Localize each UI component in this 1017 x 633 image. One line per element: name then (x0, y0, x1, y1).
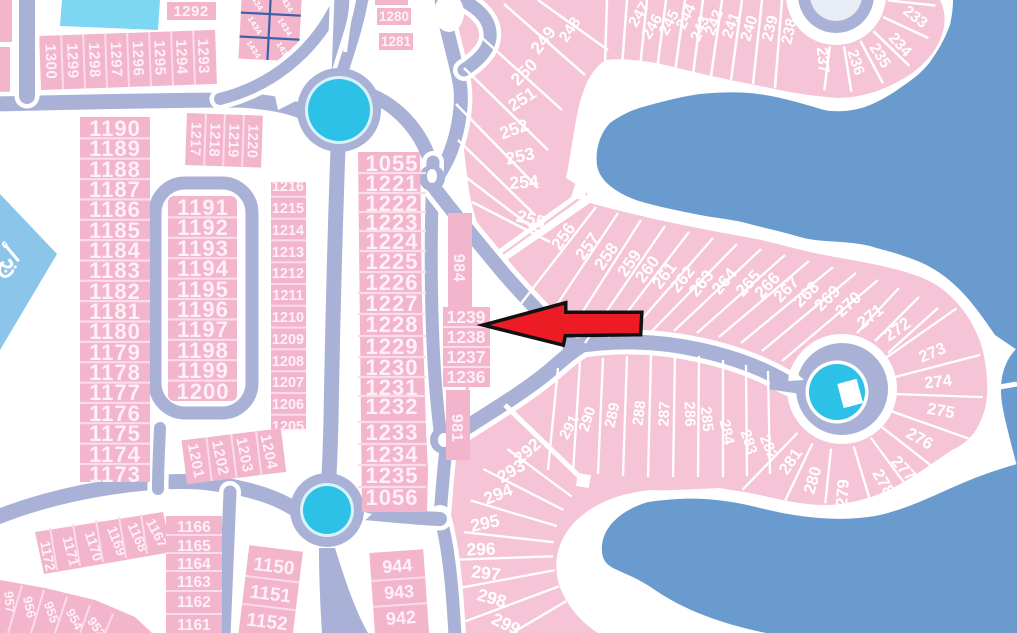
svg-text:254: 254 (509, 171, 540, 193)
svg-text:1219: 1219 (224, 123, 241, 158)
svg-text:984: 984 (450, 254, 467, 282)
svg-text:1206: 1206 (272, 397, 304, 413)
svg-text:1166: 1166 (177, 519, 211, 536)
svg-text:1210: 1210 (272, 310, 304, 326)
svg-text:1296: 1296 (129, 41, 147, 77)
svg-text:981: 981 (448, 414, 465, 442)
svg-text:1281: 1281 (381, 34, 412, 49)
svg-text:1217: 1217 (186, 122, 203, 157)
svg-text:1295: 1295 (150, 40, 168, 76)
svg-text:288: 288 (630, 400, 650, 427)
svg-text:1163: 1163 (177, 574, 211, 591)
svg-text:942: 942 (385, 607, 416, 629)
svg-text:1214: 1214 (272, 223, 304, 239)
svg-text:1292: 1292 (173, 3, 208, 20)
svg-text:1300: 1300 (41, 44, 59, 80)
svg-text:1238: 1238 (447, 327, 486, 347)
svg-text:1220: 1220 (243, 124, 260, 159)
svg-text:1297: 1297 (107, 41, 125, 77)
svg-text:943: 943 (383, 581, 414, 603)
svg-text:1173: 1173 (89, 462, 141, 487)
svg-text:296: 296 (466, 538, 496, 559)
svg-text:1280: 1280 (379, 9, 409, 24)
svg-text:287: 287 (655, 401, 673, 427)
svg-text:1298: 1298 (85, 42, 103, 78)
svg-text:274: 274 (923, 372, 953, 393)
svg-text:1213: 1213 (272, 245, 304, 261)
svg-text:237: 237 (813, 47, 832, 74)
svg-text:1293: 1293 (194, 38, 212, 74)
svg-text:944: 944 (382, 555, 413, 577)
svg-text:1211: 1211 (272, 288, 303, 304)
svg-text:1200: 1200 (177, 379, 230, 404)
svg-text:1207: 1207 (272, 375, 304, 391)
svg-text:1212: 1212 (272, 266, 304, 282)
svg-text:1215: 1215 (272, 201, 304, 217)
svg-text:279: 279 (833, 479, 853, 508)
svg-text:1236: 1236 (447, 367, 486, 387)
svg-text:1161: 1161 (177, 617, 211, 633)
svg-text:1056: 1056 (366, 485, 419, 510)
svg-text:1232: 1232 (366, 394, 419, 419)
svg-text:1209: 1209 (272, 332, 304, 348)
svg-text:1239: 1239 (447, 307, 486, 327)
svg-text:297: 297 (470, 561, 501, 584)
svg-text:286: 286 (681, 401, 699, 427)
svg-text:1218: 1218 (205, 123, 222, 158)
svg-text:1216: 1216 (272, 179, 304, 195)
svg-text:1237: 1237 (447, 347, 486, 367)
svg-text:1152: 1152 (245, 609, 288, 633)
svg-text:1208: 1208 (272, 354, 304, 370)
svg-text:285: 285 (697, 406, 717, 433)
svg-text:1299: 1299 (63, 43, 81, 79)
svg-text:1162: 1162 (177, 594, 211, 611)
svg-text:1294: 1294 (172, 39, 190, 75)
